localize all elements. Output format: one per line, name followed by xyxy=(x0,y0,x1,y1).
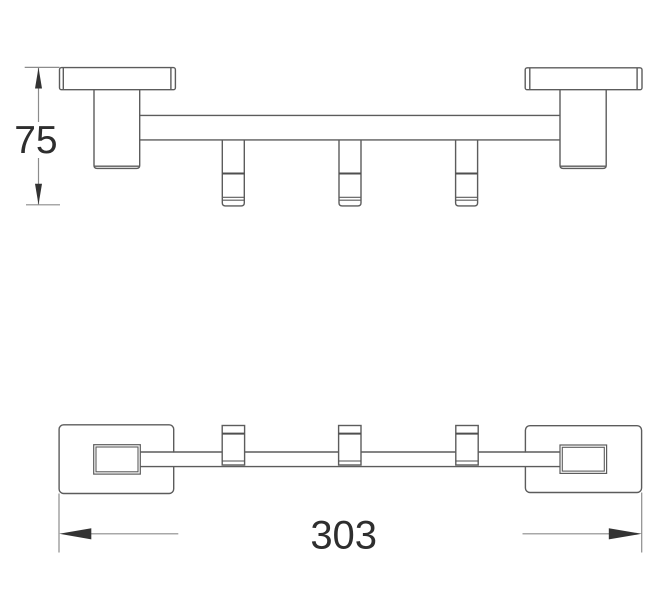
svg-text:75: 75 xyxy=(14,119,57,162)
svg-text:303: 303 xyxy=(310,514,377,558)
